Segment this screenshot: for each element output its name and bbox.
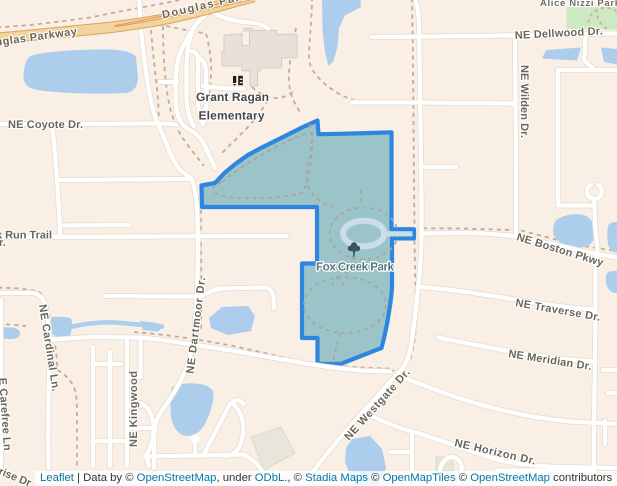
svg-text:NE Wilden Dr.: NE Wilden Dr. [518, 65, 530, 138]
svg-text:r.: r. [0, 237, 6, 249]
svg-text:NE Coyote Dr.: NE Coyote Dr. [8, 119, 83, 131]
svg-text:Grant Ragan: Grant Ragan [196, 90, 269, 104]
svg-text:Alice Nizzi Park: Alice Nizzi Park [540, 0, 617, 9]
svg-text:k Run Trail: k Run Trail [0, 230, 52, 242]
svg-text:Elementary: Elementary [199, 109, 265, 123]
svg-text:Fox Creek Park: Fox Creek Park [316, 260, 394, 274]
svg-text:NE Kingwood: NE Kingwood [128, 371, 140, 447]
